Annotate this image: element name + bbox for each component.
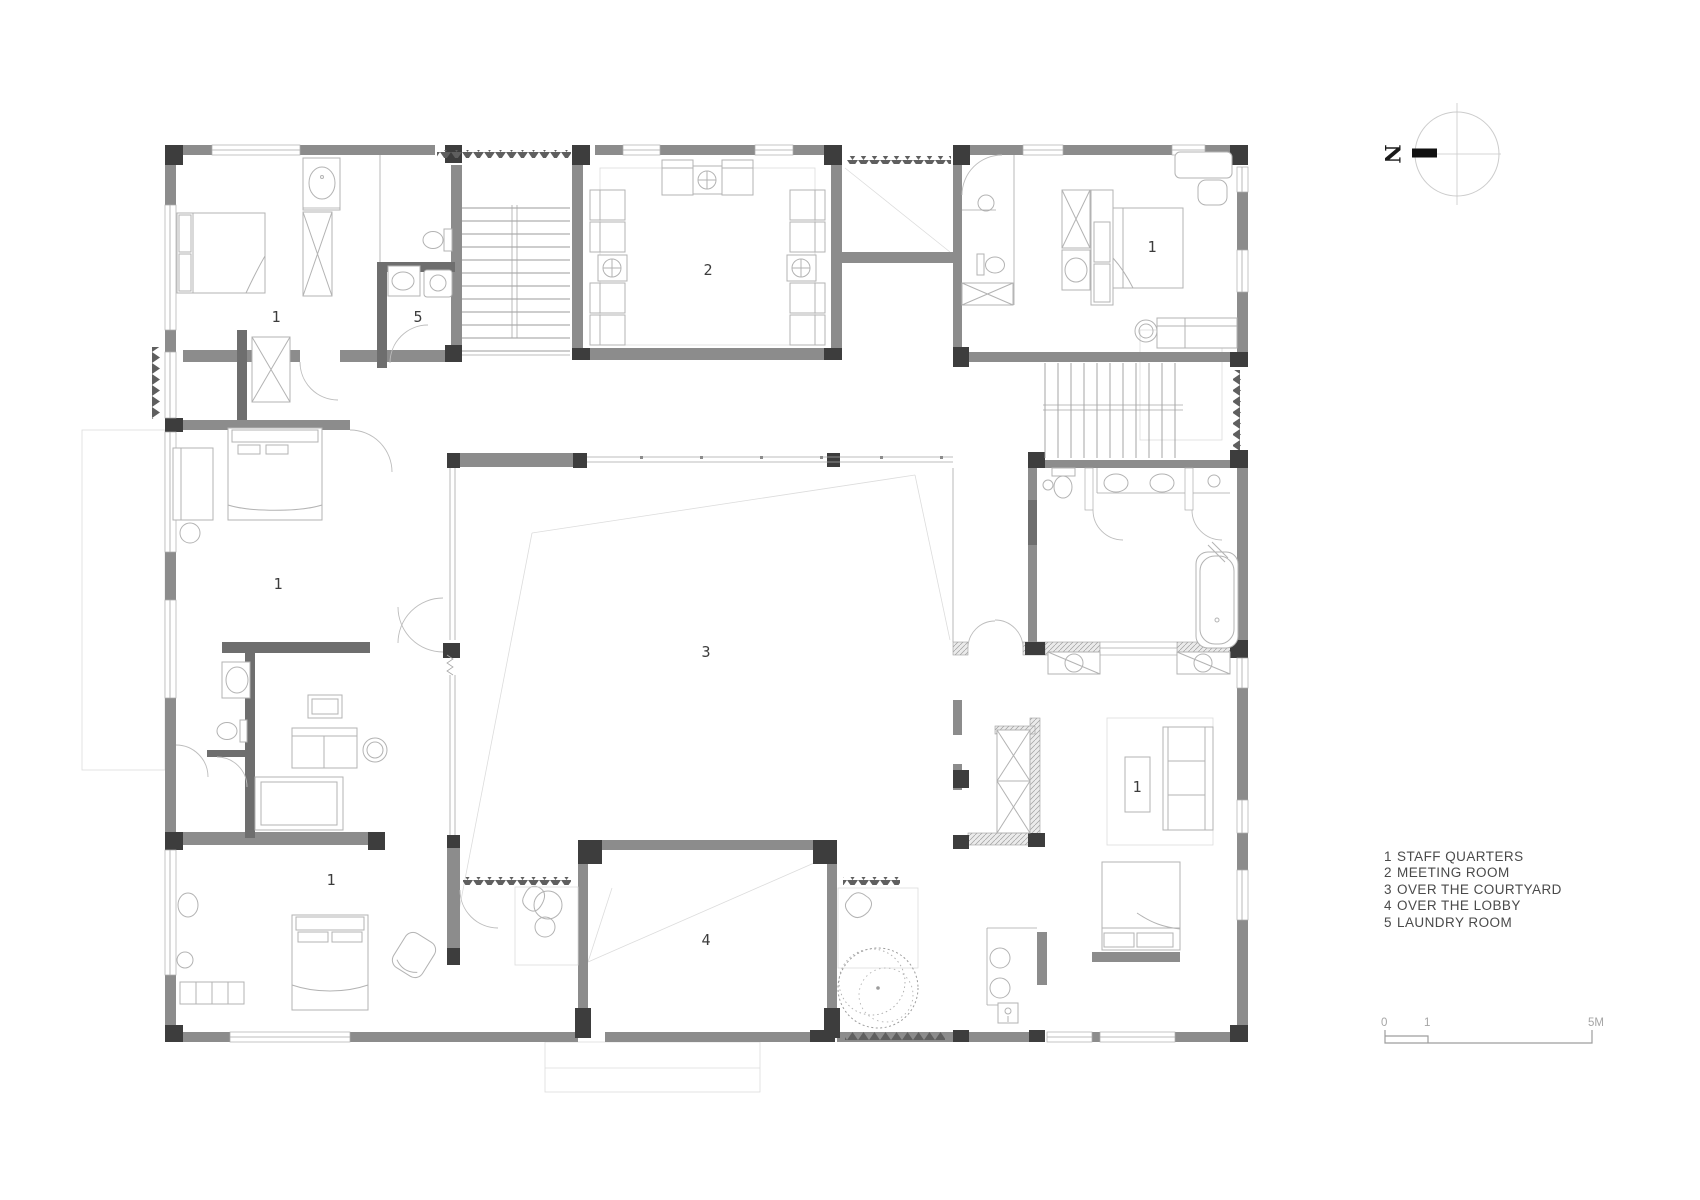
- scale-tick-1: 1: [1424, 1017, 1430, 1029]
- legend-item-laundry-room: 5 LAUNDRY ROOM: [1384, 915, 1562, 931]
- legend-num: 3: [1384, 882, 1397, 898]
- legend-num: 2: [1384, 865, 1397, 881]
- label-lobby: 4: [701, 931, 710, 949]
- legend-item-over-the-courtyard: 3 OVER THE COURTYARD: [1384, 882, 1562, 898]
- bathroom-mid-right: [1043, 468, 1238, 648]
- legend-item-staff-quarters: 1 STAFF QUARTERS: [1384, 849, 1562, 865]
- meeting-room-furniture: [590, 160, 825, 345]
- faint-outlines: [82, 168, 1222, 1092]
- scale-tick-0: 0: [1381, 1017, 1387, 1029]
- lobby-plants: [515, 886, 578, 965]
- stairs-right: [1043, 363, 1183, 458]
- north-arrow: N: [1380, 103, 1501, 205]
- legend-label: OVER THE LOBBY: [1397, 898, 1521, 914]
- north-letter: N: [1380, 144, 1405, 163]
- legend-num: 5: [1384, 915, 1397, 931]
- label-meeting-room: 2: [703, 261, 712, 279]
- label-staff-quarters-top-right: 1: [1147, 238, 1156, 256]
- legend-label: LAUNDRY ROOM: [1397, 915, 1512, 931]
- label-staff-quarters-bottom-left: 1: [326, 871, 335, 889]
- legend-item-over-the-lobby: 4 OVER THE LOBBY: [1384, 898, 1562, 914]
- scale-bar: 0 1 5M: [1381, 1017, 1604, 1043]
- legend-num: 4: [1384, 898, 1397, 914]
- label-staff-quarters-bottom-right: 1: [1132, 778, 1141, 796]
- tree: [838, 888, 918, 1028]
- courtyard-railing: [447, 456, 953, 835]
- label-staff-quarters-mid-left: 1: [273, 575, 282, 593]
- legend-label: MEETING ROOM: [1397, 865, 1510, 881]
- label-staff-quarters-top-left: 1: [271, 308, 280, 326]
- bedroom-mid-left-furniture: [173, 428, 322, 543]
- legend-num: 1: [1384, 849, 1397, 865]
- legend-label: STAFF QUARTERS: [1397, 849, 1524, 865]
- floor-plan-canvas: 1 5 2 1 1 3 1 1 4 N 0 1 5M: [0, 0, 1700, 1200]
- label-laundry-room: 5: [413, 308, 422, 326]
- bedroom-top-right-furniture: [962, 152, 1237, 348]
- shaft-closet: [252, 337, 290, 402]
- stairs-top-left: [462, 205, 570, 355]
- legend-item-meeting-room: 2 MEETING ROOM: [1384, 865, 1562, 881]
- north-bar: [1412, 149, 1437, 158]
- legend-label: OVER THE COURTYARD: [1397, 882, 1562, 898]
- scale-tick-end: 5M: [1588, 1017, 1604, 1029]
- bedroom-top-left-furniture: [177, 155, 452, 297]
- label-courtyard: 3: [701, 643, 710, 661]
- legend: 1 STAFF QUARTERS 2 MEETING ROOM 3 OVER T…: [1384, 849, 1562, 931]
